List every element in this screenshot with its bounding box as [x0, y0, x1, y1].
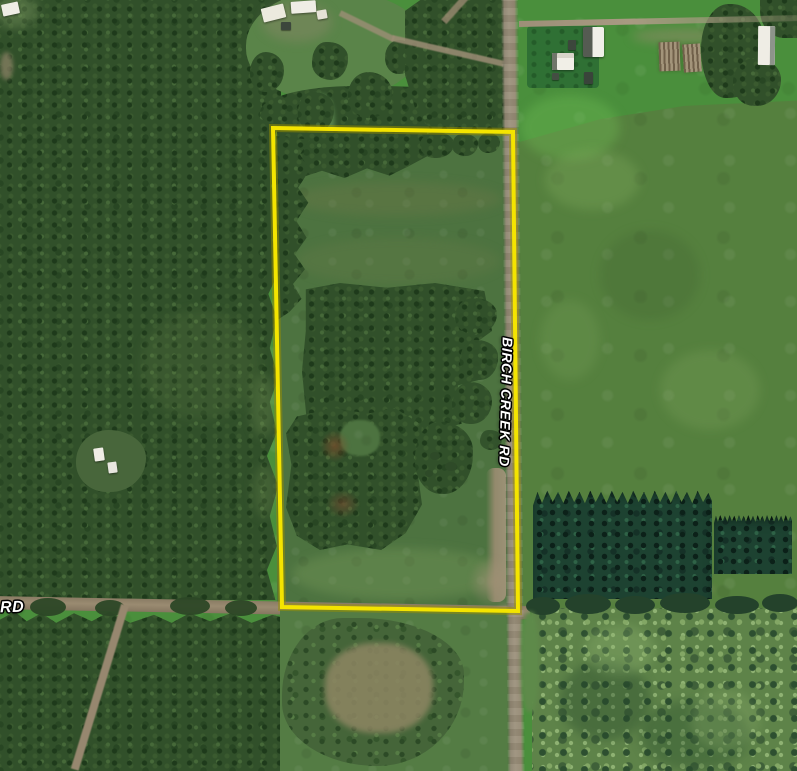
- tree-clump: [452, 134, 478, 156]
- tree-row: [615, 596, 655, 614]
- tree-overhang: [30, 598, 66, 616]
- conifer-windbreak: [714, 512, 792, 574]
- scrub-patch: [253, 465, 277, 517]
- satellite-map[interactable]: BIRCH CREEK RD RD: [0, 0, 797, 771]
- field-dark-patch: [600, 230, 700, 320]
- pasture-streak: [296, 238, 501, 284]
- dirt-patch: [0, 52, 13, 80]
- farm-building: [316, 9, 327, 20]
- farm-building: [291, 0, 317, 14]
- shed: [584, 72, 593, 84]
- shed: [93, 447, 105, 461]
- field-light-patch: [545, 150, 640, 210]
- marsh-clearing: [325, 643, 433, 733]
- tree-row: [715, 596, 759, 614]
- tree-row: [660, 593, 710, 613]
- shed: [281, 22, 291, 30]
- tree-row: [762, 594, 797, 612]
- tree-clump: [298, 92, 334, 132]
- barn: [583, 27, 604, 57]
- tree-clump: [460, 340, 498, 380]
- tree-row: [565, 594, 611, 614]
- bush: [430, 452, 440, 460]
- garden-plots: [659, 42, 681, 72]
- tree-overhang: [170, 597, 210, 615]
- shed: [552, 73, 559, 80]
- tree-overhang: [225, 600, 257, 616]
- shed: [107, 461, 117, 473]
- bush: [425, 470, 433, 477]
- scrub-patch: [250, 375, 276, 437]
- forest-southwest: [0, 610, 296, 771]
- road-label-birch-creek-rd: BIRCH CREEK RD: [496, 337, 515, 467]
- shed: [568, 40, 576, 50]
- tree-clump: [312, 42, 348, 80]
- forest-light-patch: [585, 625, 655, 675]
- outbuilding: [758, 26, 775, 65]
- road-label-rd: RD: [0, 599, 25, 618]
- autumn-trees: [320, 430, 350, 462]
- house: [552, 53, 574, 70]
- field-light-patch: [660, 350, 760, 430]
- forest-west: [0, 0, 281, 600]
- conifer-windbreak: [533, 485, 712, 599]
- forest-light-patch: [690, 690, 760, 750]
- forest-light-zone: [140, 310, 260, 420]
- pasture-streak: [292, 182, 502, 216]
- field-light-patch: [540, 300, 600, 380]
- autumn-trees: [326, 490, 360, 518]
- garden-plots: [682, 43, 702, 72]
- bush: [445, 462, 457, 471]
- road-verge-grass: [521, 612, 539, 712]
